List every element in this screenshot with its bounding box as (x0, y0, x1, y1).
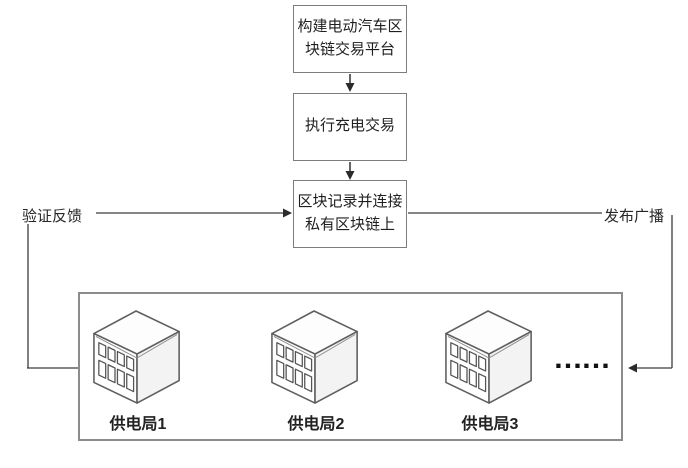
power-bureau-1: 供电局1 (88, 308, 188, 434)
power-bureau-2: 供电局2 (266, 308, 366, 434)
building-icon (443, 308, 537, 408)
verification-feedback-label: 验证反馈 (22, 205, 82, 226)
blockchain-ev-flow-diagram: 构建电动汽车区 块链交易平台 执行充电交易 区块记录并连接 私有区块链上 验证反… (0, 0, 688, 468)
arrowhead-into-container (628, 364, 637, 373)
power-bureau-2-label: 供电局2 (288, 410, 345, 434)
arrowhead-into-box3 (283, 209, 292, 218)
broadcast-label: 发布广播 (604, 205, 664, 226)
flow-box-execute-charging: 执行充电交易 (293, 93, 407, 161)
flow-box-block-record: 区块记录并连接 私有区块链上 (293, 180, 407, 248)
arrowhead-box2-box3 (346, 171, 355, 180)
power-bureau-3: 供电局3 (440, 308, 540, 434)
power-bureau-3-label: 供电局3 (462, 410, 519, 434)
building-icon (91, 308, 185, 408)
building-icon (269, 308, 363, 408)
arrowhead-box1-box2 (346, 83, 355, 92)
power-bureau-1-label: 供电局1 (110, 410, 167, 434)
more-stations-ellipsis: …… (548, 344, 614, 374)
flow-box-build-platform: 构建电动汽车区 块链交易平台 (293, 5, 407, 73)
